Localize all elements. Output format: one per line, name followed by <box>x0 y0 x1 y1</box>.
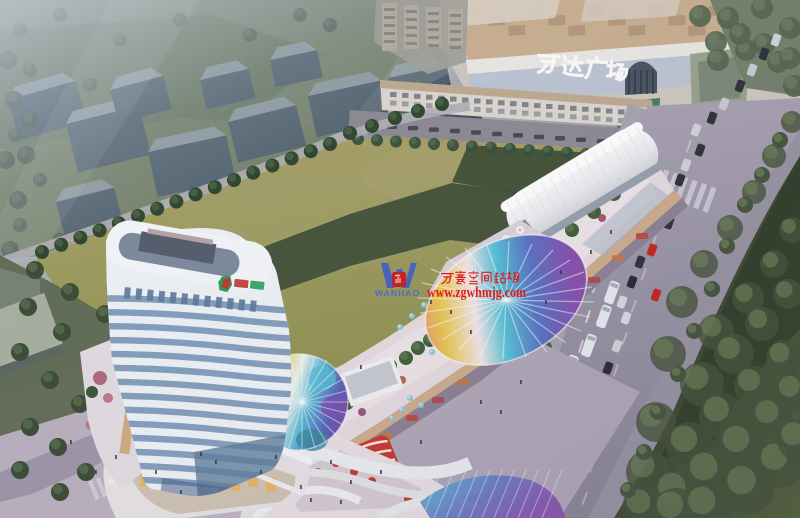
svg-text:www.zgwhmjg.com: www.zgwhmjg.com <box>427 285 526 301</box>
svg-text:WANHAO: WANHAO <box>375 288 420 298</box>
